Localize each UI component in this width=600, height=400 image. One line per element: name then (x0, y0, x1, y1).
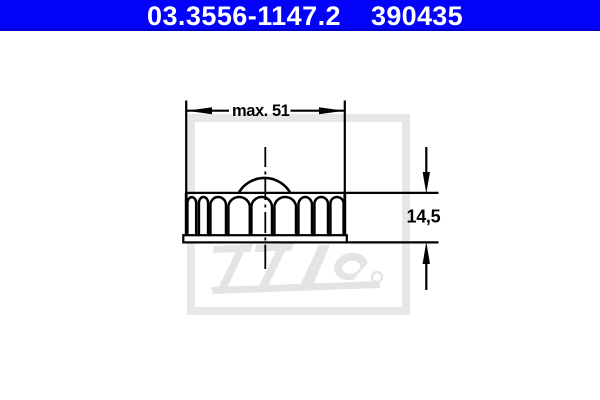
svg-text:max. 51: max. 51 (232, 102, 290, 120)
svg-text:14,5: 14,5 (407, 207, 441, 227)
